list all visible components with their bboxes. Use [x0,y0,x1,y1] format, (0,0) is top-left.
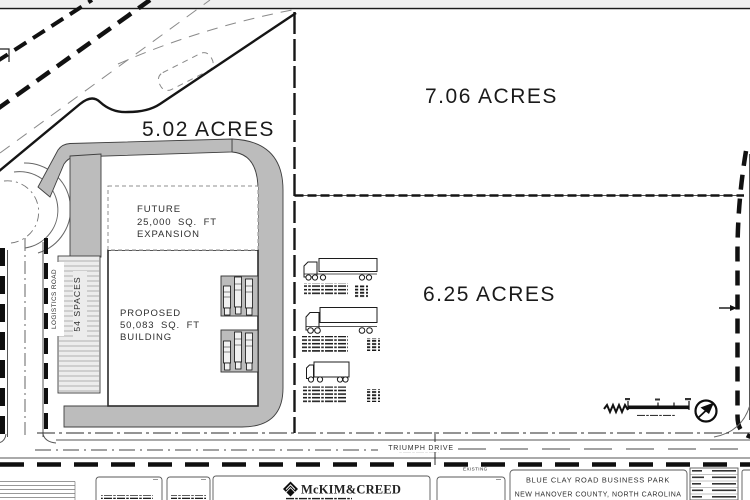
parking-count-label: 54 SPACES [72,276,82,331]
vehicle-tractor-trailer-2 [306,308,377,334]
title-block: McKIM&CREED BLUE CLAY ROAD BUSINESS PARK… [0,468,750,500]
panel-cutoff-text-1 [101,495,153,499]
revision-table [0,482,75,500]
sheet-info-table [690,468,738,500]
vehicle-single-unit-truck [307,362,350,382]
project-location: NEW HANOVER COUNTY, NORTH CAROLINA [515,492,682,499]
parcel-label-502: 5.02 ACRES [142,118,275,141]
vehicle-tractor-trailer-1 [304,259,377,281]
expansion-label-line1: FUTURE [137,204,181,215]
triumph-drive: TRIUMPH DRIVE EXISTING [0,432,750,472]
scale-bar [604,398,691,416]
vehicle-spec-block-1 [355,285,368,298]
sheet-top-margin [0,0,750,7]
expansion-label-line2: 25,000 SQ. FT [137,217,217,228]
vehicle-spec-block-2 [367,338,380,351]
site-plan-drawing: 54 SPACES LOGISTICS ROAD PROPOSED 50,083… [0,0,750,500]
north-arrow [696,401,717,422]
road-right-edge [714,151,750,437]
project-name: BLUE CLAY ROAD BUSINESS PARK [526,476,670,485]
vehicle-spec-text-2 [302,336,348,352]
building-label-line1: PROPOSED [120,308,181,319]
firm-name: McKIM&CREED [301,483,401,497]
triumph-drive-label: TRIUMPH DRIVE [388,445,454,452]
road-sub-caption [399,453,439,455]
parking-strip: 54 SPACES [58,256,100,393]
property-lines [295,12,745,433]
building-label-line3: BUILDING [120,332,172,343]
building-label-line2: 50,083 SQ. FT [120,320,200,331]
parcel-label-625: 6.25 ACRES [423,283,556,306]
vehicle-legend [302,259,380,403]
vehicle-spec-block-3 [367,389,380,402]
site-plan-sheet: 54 SPACES LOGISTICS ROAD PROPOSED 50,083… [0,0,750,500]
vehicle-spec-text-1 [304,283,348,296]
expansion-label-line3: EXPANSION [137,229,200,240]
parcel-label-706: 7.06 ACRES [425,85,558,108]
existing-label: EXISTING [463,467,488,472]
logistics-road-label: LOGISTICS ROAD [51,269,58,329]
proposed-building: PROPOSED 50,083 SQ. FT BUILDING [108,250,258,406]
future-expansion: FUTURE 25,000 SQ. FT EXPANSION [108,186,258,250]
scale-bar-caption [637,414,675,416]
vehicle-spec-text-3 [303,387,347,403]
panel-cutoff-text-2 [171,495,206,499]
